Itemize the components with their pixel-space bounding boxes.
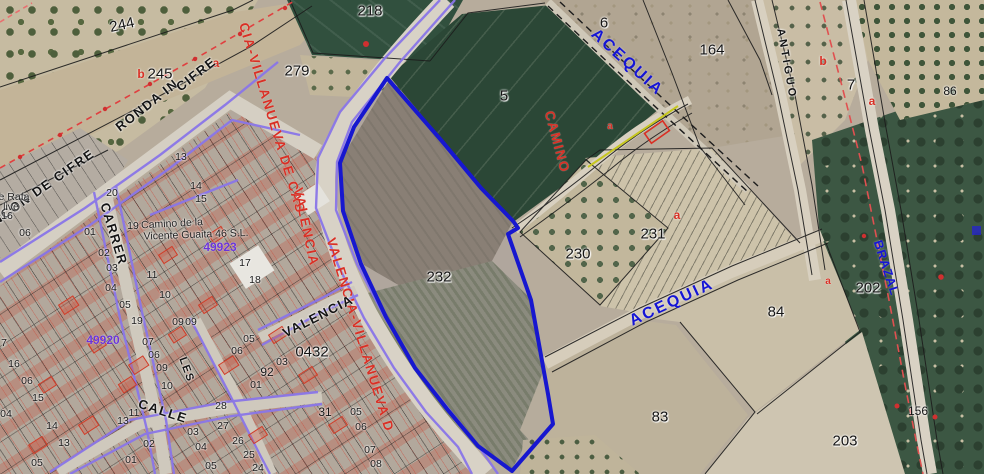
house-number: 05 xyxy=(205,461,217,472)
camino-label-red: CAMINO xyxy=(542,109,572,174)
street-label-les: LES xyxy=(176,356,195,384)
subparcel-letter-b2: b xyxy=(819,55,826,67)
house-number: 04 xyxy=(0,409,12,420)
house-number: 19 xyxy=(131,316,143,327)
block-number-49923: 49923 xyxy=(203,241,236,253)
house-number: 03 xyxy=(276,357,288,368)
house-number: 25 xyxy=(243,450,255,461)
parcel-number-279: 279 xyxy=(284,64,309,79)
house-number: 24 xyxy=(252,463,264,474)
house-number: 01 xyxy=(250,380,262,391)
parcel-number-84: 84 xyxy=(768,305,785,320)
house-number: 02 xyxy=(143,439,155,450)
house-number: 06 xyxy=(148,350,160,361)
parcel-number-244: 244 xyxy=(108,15,136,35)
house-number: 06 xyxy=(355,422,367,433)
house-number: 02 xyxy=(98,248,110,259)
house-number: 09 xyxy=(156,363,168,374)
house-number-31: 31 xyxy=(318,406,331,418)
street-label-ronda: RONDA IN xyxy=(113,77,181,134)
block-number-49920: 49920 xyxy=(86,334,119,346)
house-number: 07 xyxy=(142,337,154,348)
parcel-number-86: 86 xyxy=(943,85,956,97)
road-label-valencia-red: VALENCIA xyxy=(291,186,321,267)
house-number: 15 xyxy=(195,194,207,205)
street-label-cifre: CIFRE xyxy=(174,55,219,94)
house-number: 06 xyxy=(19,228,31,239)
house-number: 27 xyxy=(217,421,229,432)
house-number: 06 xyxy=(231,346,243,357)
house-number: 03 xyxy=(106,263,118,274)
cadastral-map-viewport[interactable]: 244b245a21827961645b7a86ANTIGUOACEQUIAAC… xyxy=(0,0,984,474)
parcel-number-203: 203 xyxy=(832,434,857,449)
house-number-92: 92 xyxy=(260,366,273,378)
parcel-number-5: 5 xyxy=(500,89,508,104)
parcel-number-232: 232 xyxy=(426,270,451,285)
house-number: 05 xyxy=(119,300,131,311)
house-number: 16 xyxy=(8,359,20,370)
house-number: 14 xyxy=(190,181,202,192)
subparcel-letter-a2: a xyxy=(869,95,876,107)
parcel-number-156: 156 xyxy=(908,405,928,417)
street-label-valencia: VALENCIA xyxy=(281,293,356,340)
house-number: 03 xyxy=(187,427,199,438)
parcel-number-230: 230 xyxy=(565,247,590,262)
house-number: 01 xyxy=(84,227,96,238)
house-number: 05 xyxy=(350,407,362,418)
acequia-label-top: ACEQUIA xyxy=(588,27,667,100)
house-number: 11 xyxy=(147,270,158,281)
house-number: 04 xyxy=(105,283,117,294)
house-number: 15 xyxy=(32,393,44,404)
house-number: 28 xyxy=(215,401,227,412)
parcel-number-83: 83 xyxy=(652,410,669,425)
house-number: 01 xyxy=(125,455,137,466)
parcel-number-164: 164 xyxy=(699,43,724,58)
house-number: 26 xyxy=(232,436,244,447)
house-number: 09 xyxy=(172,317,184,328)
house-number: 07 xyxy=(364,445,376,456)
house-number-0432: 0432 xyxy=(295,345,328,360)
house-number: 05 xyxy=(243,334,255,345)
house-number: 18 xyxy=(249,275,261,286)
house-number: 08 xyxy=(370,459,382,470)
house-number: 20 xyxy=(106,188,118,199)
house-number: 13 xyxy=(58,438,70,449)
parcel-number-231: 231 xyxy=(640,227,665,242)
street-label-calle: CALLE xyxy=(137,397,189,425)
house-number: 16 xyxy=(1,211,13,222)
subparcel-letter-a3: a xyxy=(674,209,681,221)
house-number: 17 xyxy=(239,258,251,269)
house-number: 10 xyxy=(161,381,173,392)
house-number: 10 xyxy=(159,290,171,301)
house-number: 13 xyxy=(175,152,187,163)
house-number: 13 xyxy=(117,416,129,427)
house-number: 06 xyxy=(21,376,33,387)
label-layer: 244b245a21827961645b7a86ANTIGUOACEQUIAAC… xyxy=(0,0,984,474)
acequia-label-mid: ACEQUIA xyxy=(627,276,716,329)
parcel-number-218: 218 xyxy=(357,4,382,19)
subparcel-letter-a5: a xyxy=(607,122,613,132)
path-label-antiguo: ANTIGUO xyxy=(774,28,797,101)
house-number: 14 xyxy=(46,421,58,432)
house-number: 7 xyxy=(1,338,7,349)
house-number: 11 xyxy=(129,408,140,419)
house-number: 19 xyxy=(127,221,139,232)
street-label-rincon-de-cifre: NCON DE CIFRE xyxy=(0,147,97,228)
parcel-number-7: 7 xyxy=(847,78,855,93)
subparcel-letter-b: b xyxy=(137,68,144,80)
house-number: 05 xyxy=(31,458,43,469)
road-label-villanueva-1: CIA-VILLANUEVA DE CAS xyxy=(236,21,307,215)
house-number: 04 xyxy=(195,442,207,453)
subparcel-letter-a4: a xyxy=(825,277,831,287)
house-number: 09 xyxy=(185,317,197,328)
parcel-number-202: 202 xyxy=(855,281,880,296)
road-label-villanueva-2: VALENCIA-VILLANUEVA D xyxy=(324,236,396,433)
